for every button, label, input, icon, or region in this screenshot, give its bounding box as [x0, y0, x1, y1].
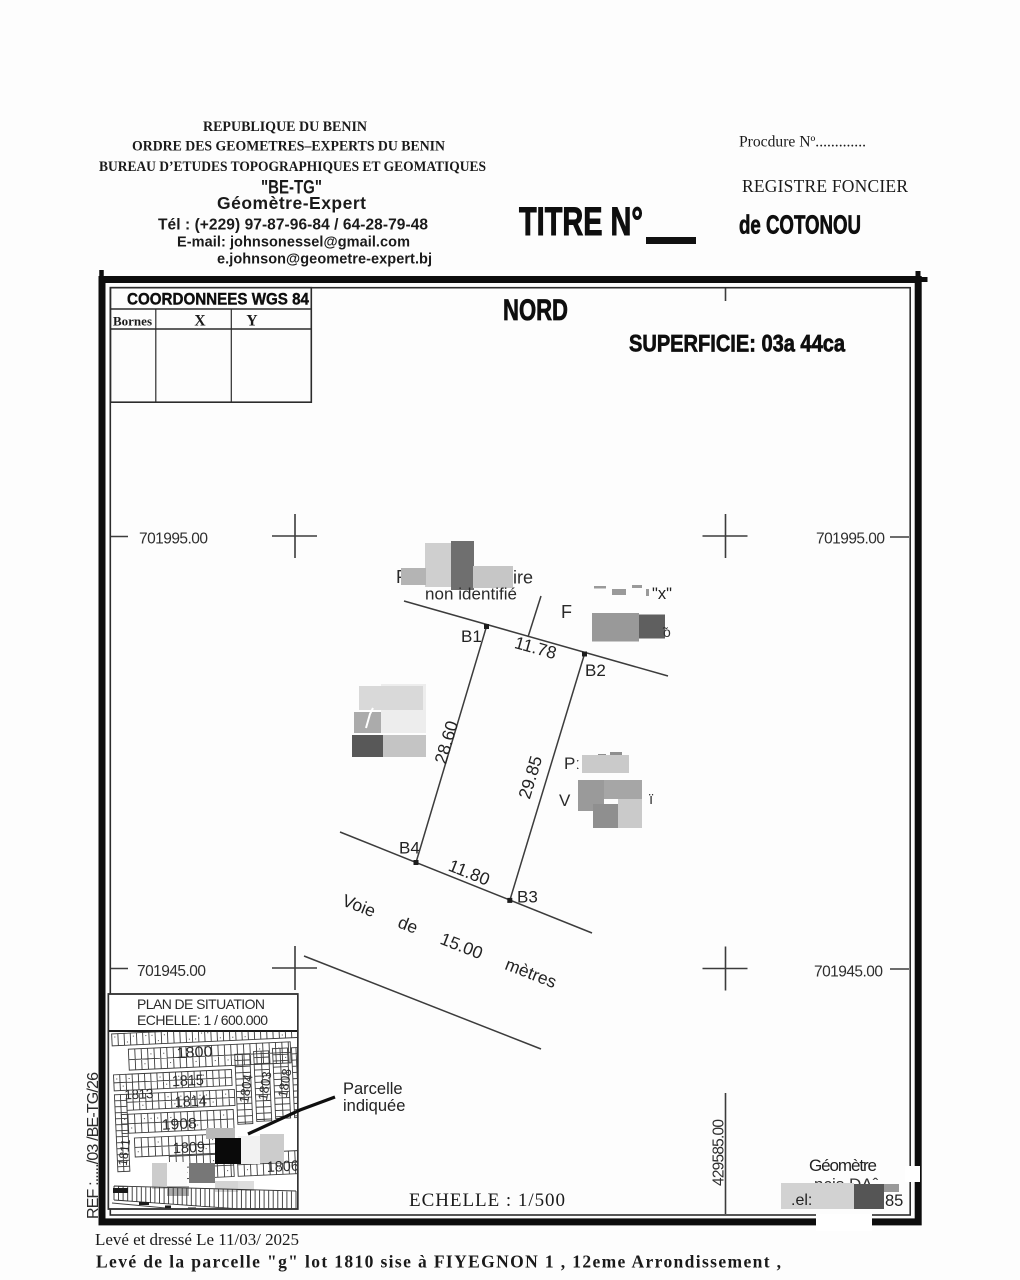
svg-text:SUPERFICIE: 03a 44ca: SUPERFICIE: 03a 44ca: [629, 331, 846, 358]
svg-text:1806: 1806: [266, 1158, 299, 1176]
svg-text:PLAN DE SITUATION: PLAN DE SITUATION: [137, 996, 265, 1012]
svg-text:B3: B3: [517, 888, 538, 907]
svg-text:701995.00: 701995.00: [139, 531, 208, 548]
svg-text:E-mail: johnsonessel@gmail.com: E-mail: johnsonessel@gmail.com: [177, 235, 410, 251]
svg-text:Géomètre-Expert: Géomètre-Expert: [217, 193, 366, 213]
svg-text:COORDONNEES WGS 84: COORDONNEES WGS 84: [127, 291, 310, 309]
svg-text:F: F: [561, 602, 572, 622]
svg-text:B2: B2: [585, 661, 606, 680]
svg-text:X: X: [194, 313, 206, 330]
svg-text:Y: Y: [246, 313, 257, 330]
svg-text:1815: 1815: [171, 1072, 204, 1090]
svg-text:e.johnson@geometre-expert.bj: e.johnson@geometre-expert.bj: [217, 252, 432, 268]
svg-text:Tél : (+229) 97-87-96-84 / 64-: Tél : (+229) 97-87-96-84 / 64-28-79-48: [158, 217, 428, 234]
svg-text:Bornes: Bornes: [113, 314, 152, 329]
svg-text:429585.00: 429585.00: [711, 1119, 728, 1186]
svg-text:1814: 1814: [174, 1093, 207, 1111]
svg-text:"x": "x": [652, 585, 672, 603]
svg-text:B1: B1: [461, 627, 482, 646]
svg-text:Procdure Nº.............: Procdure Nº.............: [739, 134, 866, 151]
svg-text:BUREAU D’ETUDES TOPOGRAPHIQU: BUREAU D’ETUDES TOPOGRAPHIQUES ET GEOMAT…: [99, 159, 486, 175]
svg-text:Levé de la parcelle "g" l: Levé de la parcelle "g" lot 1810 sise à …: [96, 1252, 781, 1272]
svg-text:̃o: ̃o: [662, 624, 671, 640]
svg-text:Parcelle: Parcelle: [343, 1080, 403, 1098]
svg-text:REF :...../03 /BE-TG/26: REF :...../03 /BE-TG/26: [85, 1072, 102, 1219]
svg-text:ECHELLE: 1 / 600.000: ECHELLE: 1 / 600.000: [137, 1012, 268, 1028]
svg-text:1908: 1908: [161, 1115, 197, 1134]
svg-text:1800: 1800: [176, 1043, 213, 1062]
svg-text:701995.00: 701995.00: [816, 531, 885, 548]
svg-text:701945.00: 701945.00: [137, 963, 206, 980]
svg-text:ECHELLE : 1/500: ECHELLE : 1/500: [409, 1190, 565, 1211]
svg-text:non identifié: non identifié: [425, 585, 517, 604]
svg-text:Pː: Pː: [564, 754, 580, 773]
svg-text:Levé et dressé Le 11/03/ 2025: Levé et dressé Le 11/03/ 2025: [95, 1230, 299, 1249]
svg-text:NORD: NORD: [503, 294, 568, 327]
svg-text:de COTONOU: de COTONOU: [739, 210, 861, 240]
svg-text:ORDRE DES GEOMETRES–EXPERTS: ORDRE DES GEOMETRES–EXPERTS DU BENIN: [132, 139, 445, 155]
svg-text:B4: B4: [399, 839, 420, 858]
svg-text:1809: 1809: [173, 1139, 206, 1157]
svg-text:REGISTRE FONCIER: REGISTRE FONCIER: [742, 176, 908, 196]
svg-text:TITRE N°: TITRE N°: [519, 200, 643, 244]
svg-text:Géomètre: Géomètre: [809, 1156, 877, 1175]
svg-text:REPUBLIQUE DU BENIN: REPUBLIQUE DU BENIN: [203, 119, 368, 135]
svg-text:85: 85: [885, 1192, 903, 1210]
svg-text:.el:: .el:: [791, 1192, 812, 1209]
svg-text:1813: 1813: [124, 1086, 154, 1102]
svg-text:indiquée: indiquée: [343, 1097, 405, 1115]
svg-text:701945.00: 701945.00: [814, 964, 883, 981]
svg-text:V: V: [559, 791, 571, 810]
